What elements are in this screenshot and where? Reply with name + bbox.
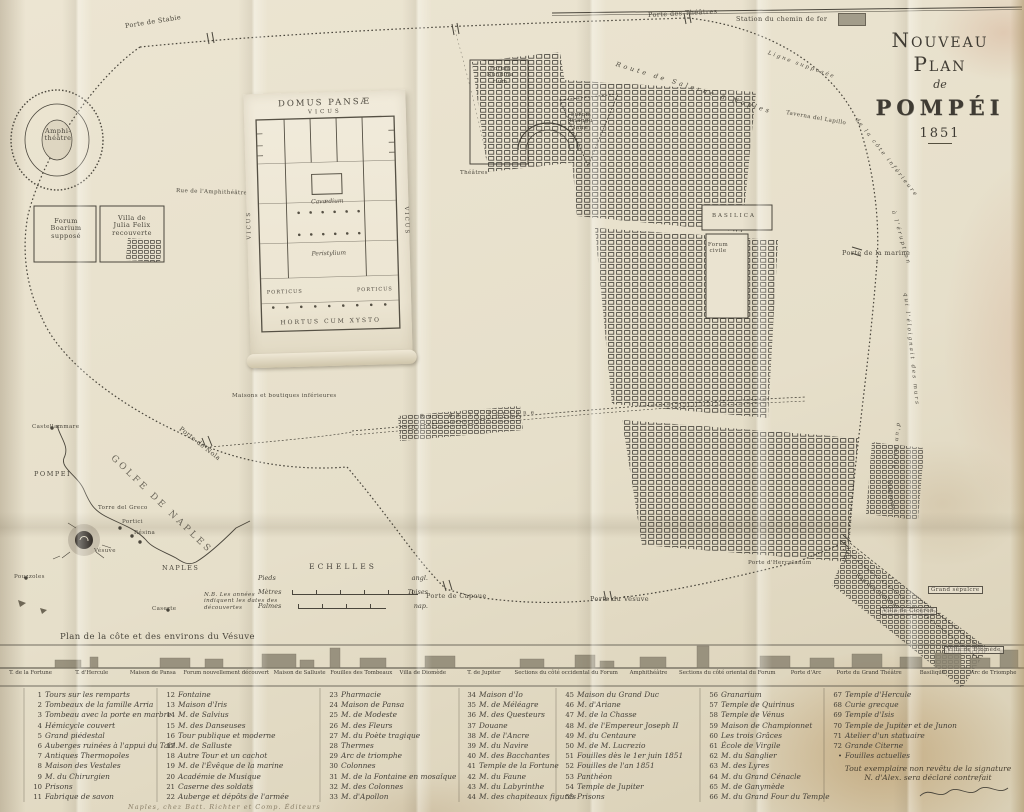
strip-section-label: Arc de Triomphe (963, 670, 1024, 676)
legend-item: 3Tombeau avec la porte en marbre (30, 710, 178, 720)
legend-item: 65M. de Ganymède (706, 782, 830, 792)
legend-item: 35M. de Méléagre (464, 700, 576, 710)
legend-item: 67Temple d'Hercule (830, 690, 957, 700)
scale-row: Palmes nap. (258, 599, 428, 613)
legend-item: 50M. de M. Lucrezio (562, 741, 683, 751)
legend-item: 25M. de Modeste (326, 710, 456, 720)
legend-item: 10Prisons (30, 782, 178, 792)
label-amphitheatre: Amphi-théâtre (38, 128, 78, 143)
map-sheet: Nouveau Plan de POMPÉI 1851 Station du c… (0, 0, 1024, 812)
label-villa-diomede: Villa de Diomède (944, 646, 1004, 654)
title-rule (928, 143, 952, 144)
legend-item: 12Fontaine (163, 690, 289, 700)
legend-column-6: 56Granarium57Temple de Quirinus58Temple … (706, 690, 830, 802)
strip-section-label: Sections du côté occidental du Forum (515, 670, 618, 676)
legend-item: 1Tours sur les remparts (30, 690, 178, 700)
legend-column-7: 67Temple d'Hercule68Curie grecque69Templ… (830, 690, 957, 761)
strip-section-label: Forum nouvellement découvert (183, 670, 269, 676)
label-basilica: BASILICA (712, 213, 756, 219)
strip-section-label: Villa de Diomède (392, 670, 453, 676)
legend-item: 62M. du Sanglier (706, 751, 830, 761)
label-forum-triangulaire: Forumtriangulaire (566, 112, 596, 131)
domus-porticus-right: PORTICUS (357, 286, 393, 293)
title-year: 1851 (862, 126, 1018, 141)
domus-pansa-inset: DOMUS PANSÆ VICUS VICUS VICUS Cavædium P… (243, 90, 412, 360)
publisher-imprint: Naples, chez Batt. Richter et Comp. Édit… (128, 803, 321, 811)
legend-item: 59Maison de Championnet (706, 721, 830, 731)
domus-porticus-left: PORTICUS (267, 289, 303, 296)
counterfeit-note: Tout exemplaire non revêtu de la signatu… (836, 764, 1020, 783)
legend-item: 44M. des chapiteaux figurés (464, 792, 576, 802)
label-maisons-boutiques: Maisons et boutiques inférieures (232, 393, 337, 399)
legend-item: 29Arc de triomphe (326, 751, 456, 761)
legend-item: 11Fabrique de savon (30, 792, 178, 802)
legend-item: 48M. de l'Empereur Joseph II (562, 721, 683, 731)
legend-item: 34Maison d'Io (464, 690, 576, 700)
strip-section-label: T. de Jupiter (453, 670, 514, 676)
legend-item: 37Douane (464, 721, 576, 731)
legend-item: 16Tour publique et moderne (163, 731, 289, 741)
legend-item: 5Grand piédestal (30, 731, 178, 741)
legend-item: 30Colonnes (326, 761, 456, 771)
label-naples-inset: NAPLES (162, 564, 199, 572)
legend-item: 41Temple de la Fortune (464, 761, 576, 771)
label-torre-greco: Torre del Greco (98, 505, 148, 511)
legend-column-3: 23Pharmacie24Maison de Pansa25M. de Mode… (326, 690, 456, 802)
legend-item: 42M. du Faune (464, 772, 576, 782)
legend-item: 14M. de Salvius (163, 710, 289, 720)
legend-item: 68Curie grecque (830, 700, 957, 710)
legend-item: 43M. du Labyrinthe (464, 782, 576, 792)
scale-unit-label: Palmes (258, 602, 281, 610)
label-pouzzoles: Pouzzoles (14, 574, 45, 580)
domus-vicus-left: VICUS (246, 211, 253, 240)
label-castellammare: Castellammare (32, 424, 79, 430)
label-portici: Portici (122, 519, 143, 525)
panorama-strip-labels: T. de la FortuneT. d'HerculeMaison de Pa… (0, 670, 1024, 676)
legend-item: 64M. du Grand Cénacle (706, 772, 830, 782)
legend-item: 26M. des Fleurs (326, 721, 456, 731)
legend-item: •Fouilles actuelles (830, 751, 957, 761)
legend-item: 19M. de l'Évêque de la marine (163, 761, 289, 771)
strip-section-label: T. de la Fortune (0, 670, 61, 676)
station-label: Station du chemin de fer (736, 15, 827, 23)
label-vesuve: Vésuve (94, 548, 116, 554)
legend-item: 56Granarium (706, 690, 830, 700)
legend-item: 61École de Virgile (706, 741, 830, 751)
title-pompei: POMPÉI (862, 95, 1018, 120)
scale-unit-label: Pieds (258, 574, 276, 582)
legend-item: 53Panthéon (562, 772, 683, 782)
legend-item: 23Pharmacie (326, 690, 456, 700)
legend-column-5: 45Maison du Grand Duc46M. d'Ariane47M. d… (562, 690, 683, 802)
label-resina: Résina (134, 530, 155, 536)
label-theatres: Théâtres (460, 170, 488, 176)
strip-section-label: Maison de Pansa (122, 670, 183, 676)
legend-item: 15M. des Danseuses (163, 721, 289, 731)
legend-item: 9M. du Chirurgien (30, 772, 178, 782)
scale-title: ECHELLES (258, 562, 428, 571)
label-porte-herculanum: Porte d'Herculanum (748, 560, 812, 566)
legend-item: 51Fouilles dès le 1er juin 1851 (562, 751, 683, 761)
title-block: Nouveau Plan de POMPÉI 1851 (862, 28, 1018, 144)
scale-end-label: Toises (408, 588, 428, 596)
legend-item: 18Autre Tour et un cachot (163, 751, 289, 761)
label-porte-vesuve: Porte du Vésuve (590, 595, 649, 603)
strip-section-label: Fouilles des Tombeaux (330, 670, 392, 676)
legend-item: 8Maison des Vestales (30, 761, 178, 771)
legend-item: 6Auberges ruinées à l'appui du Tabl. (30, 741, 178, 751)
strip-section-label: Basilique (902, 670, 963, 676)
legend-item: 52Fouilles de l'an 1851 (562, 761, 683, 771)
legend-item: 4Hémicycle couvert (30, 721, 178, 731)
strip-section-label: Porte du Grand Théâtre (837, 670, 902, 676)
scale-row: Mètres Toises (258, 585, 428, 599)
domus-vicus-right: VICUS (403, 206, 410, 235)
legend-column-4: 34Maison d'Io35M. de Méléagre36M. des Qu… (464, 690, 576, 802)
legend-item: 71Atelier d'un statuaire (830, 731, 957, 741)
legend-item: 57Temple de Quirinus (706, 700, 830, 710)
legend-item: 70Temple de Jupiter et de Junon (830, 721, 957, 731)
legend-item: 46M. d'Ariane (562, 700, 683, 710)
scale-bar (292, 590, 418, 595)
legend-item: 28Thermes (326, 741, 456, 751)
legend-item: 17M. de Salluste (163, 741, 289, 751)
scale-block: ECHELLES Pieds angl. Mètres Toises Palme… (258, 562, 428, 613)
legend-item: 31M. de la Fontaine en mosaïque (326, 772, 456, 782)
label-villa-ciceron: Villa de Cicéron (880, 607, 937, 615)
station-symbol (838, 13, 866, 26)
scale-end-label: angl. (412, 574, 428, 582)
legend-item: 38M. de l'Ancre (464, 731, 576, 741)
legend-item: 20Académie de Musique (163, 772, 289, 782)
strip-section-label: T. d'Hercule (61, 670, 122, 676)
legend-item: 49M. du Centaure (562, 731, 683, 741)
label-pompei-inset: POMPEI (34, 470, 71, 478)
legend-item: 39M. du Navire (464, 741, 576, 751)
strip-section-label: Sections du côté oriental du Forum (679, 670, 775, 676)
legend-item: 72Grande Citerne (830, 741, 957, 751)
legend-item: 27M. du Poète tragique (326, 731, 456, 741)
legend-item: 47M. de la Chasse (562, 710, 683, 720)
legend-item: 58Temple de Vénus (706, 710, 830, 720)
inset-caption: Plan de la côte et des environs du Vésuv… (60, 632, 255, 642)
legend-item: 21Caserne des soldats (163, 782, 289, 792)
legend-item: 36M. des Questeurs (464, 710, 576, 720)
legend-item: 54Temple de Jupiter (562, 782, 683, 792)
legend-item: 24Maison de Pansa (326, 700, 456, 710)
legend-item: 60Les trois Grâces (706, 731, 830, 741)
title-line2: de (862, 78, 1018, 91)
strip-section-label: Porte d'Arc (776, 670, 837, 676)
strip-section-label: Maison de Salluste (269, 670, 330, 676)
legend-item: 63M. des Lyres (706, 761, 830, 771)
legend-item: 45Maison du Grand Duc (562, 690, 683, 700)
label-porte-capoue: Porte de Capoue (426, 592, 487, 600)
label-caserte: Caserte (152, 606, 176, 612)
label-grand-sepulcre: Grand sépulcre (928, 586, 983, 594)
legend-item: 32M. des Colonnes (326, 782, 456, 792)
legend-item: 2Tombeaux de la famille Arria (30, 700, 178, 710)
label-forum-boarium: ForumBoariumsupposé (44, 218, 88, 240)
scale-unit-label: Mètres (258, 588, 281, 596)
scale-bar (298, 604, 386, 609)
label-villa-julia: Villa deJulia Felixrecouverte (106, 215, 158, 237)
legend-item: 66M. du Grand Four du Temple (706, 792, 830, 802)
legend-item: 13Maison d'Iris (163, 700, 289, 710)
legend-item: 69Temple d'Isis (830, 710, 957, 720)
label-forum-nundinarium: ForumNundinarium (484, 66, 516, 85)
legend-item: 40M. des Bacchantes (464, 751, 576, 761)
label-porte-marine: Porte de la marine (842, 249, 910, 257)
legend-item: 33M. d'Apollon (326, 792, 456, 802)
strip-section-label: Amphithéâtre (618, 670, 679, 676)
legend-item: 7Antiques Thermopoles (30, 751, 178, 761)
label-forum-civile: Forumcivile (702, 242, 734, 255)
legend-column-1: 1Tours sur les remparts2Tombeaux de la f… (30, 690, 178, 802)
legend-item: 22Auberge et dépôts de l'armée (163, 792, 289, 802)
title-line1: Nouveau Plan (862, 28, 1018, 76)
scale-end-label: nap. (414, 602, 428, 610)
legend-column-2: 12Fontaine13Maison d'Iris14M. de Salvius… (163, 690, 289, 802)
legend-item: 55Prisons (562, 792, 683, 802)
scale-row: Pieds angl. (258, 571, 428, 585)
